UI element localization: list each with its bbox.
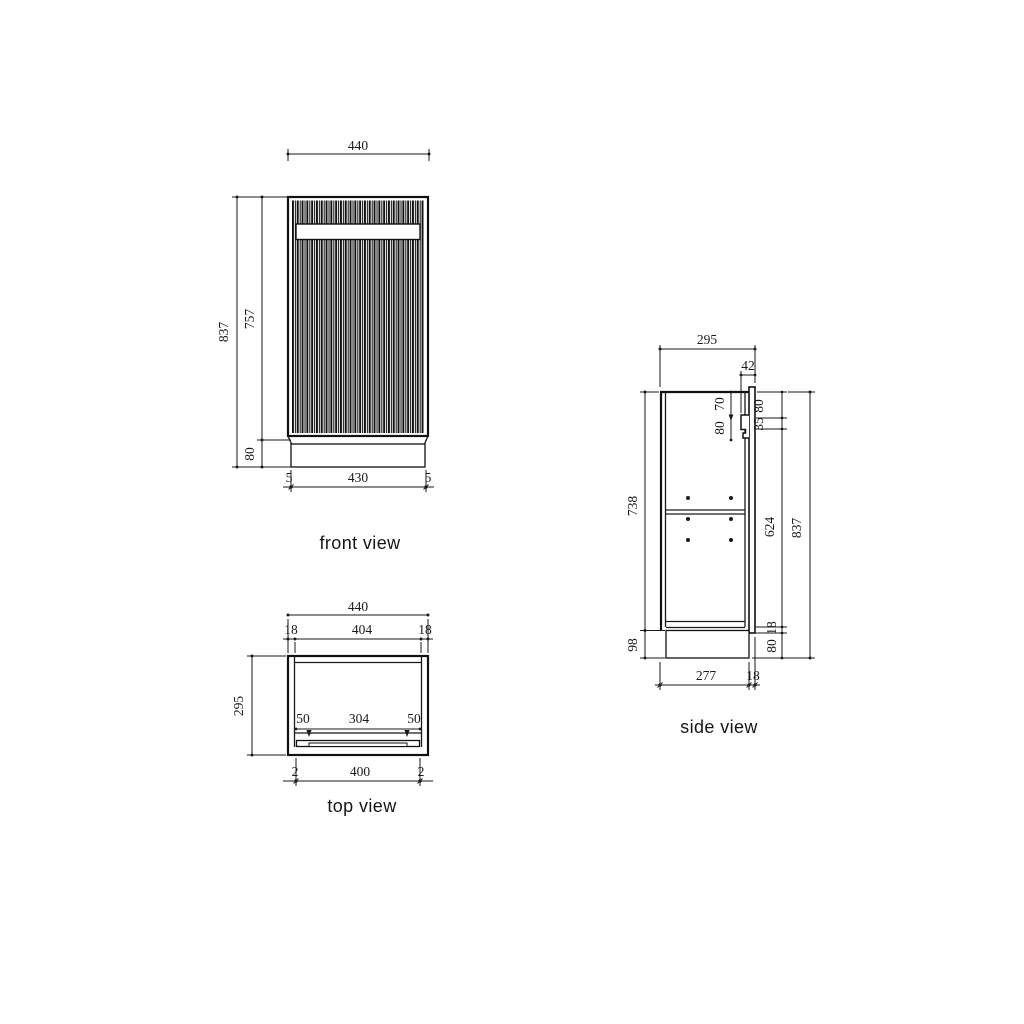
front-dim-height-overall: 837 (216, 322, 231, 343)
side-plinth (666, 631, 749, 659)
front-dim-bottom: 5 430 5 (283, 470, 434, 492)
side-dim-bottom-panel: 18 (764, 621, 779, 635)
front-dim-gap-left: 5 (286, 470, 293, 485)
side-cabinet (660, 387, 755, 658)
top-dim-overall-width: 440 (287, 599, 430, 617)
top-dim-handle-width: 304 (349, 711, 370, 726)
top-dim-wall-left: 18 (284, 622, 298, 637)
front-dim-left-chain: 837 757 80 (216, 196, 291, 469)
top-dim-door-width: 400 (350, 764, 371, 779)
front-dim-plinth-width: 430 (348, 470, 369, 485)
side-handle-profile (741, 415, 749, 438)
top-dim-width-overall: 440 (348, 599, 369, 614)
side-dim-left-chain: 738 98 (625, 391, 665, 660)
front-view: 440 837 757 80 (216, 138, 434, 553)
technical-drawing-page: 440 837 757 80 (0, 0, 1024, 1024)
side-dim-depth-text: 295 (697, 332, 718, 347)
side-dim-handle-grip: 35 (751, 417, 766, 431)
top-cabinet (288, 656, 428, 755)
top-dim-handle-inset-right: 50 (407, 711, 421, 726)
front-dim-width-top: 440 (348, 138, 369, 153)
front-dim-overall-width: 440 (287, 138, 431, 161)
side-dim-base-depth: 277 (696, 668, 717, 683)
top-dim-handle-inset-left: 50 (296, 711, 310, 726)
top-handle-strip (309, 743, 407, 747)
side-dim-plinth-right: 80 (764, 639, 779, 653)
front-handle-groove (296, 224, 420, 240)
drawing-canvas: 440 837 757 80 (0, 0, 1024, 1024)
front-dim-height-door: 757 (242, 309, 257, 330)
front-view-label: front view (319, 533, 401, 553)
front-dim-gap-right: 5 (425, 470, 432, 485)
top-view-label: top view (327, 796, 397, 816)
side-dim-front-assembly-text: 42 (741, 358, 755, 373)
side-dim-door-thickness: 18 (746, 668, 760, 683)
side-dim-top-to-handle: 80 (751, 399, 766, 413)
side-dim-interior-height: 624 (762, 517, 777, 538)
top-dim-interior-width: 404 (352, 622, 373, 637)
side-dim-handle-offset-top: 70 (712, 397, 727, 411)
top-view: 440 18 404 18 (231, 599, 433, 816)
side-dim-overall-height: 837 (788, 391, 815, 660)
top-dim-wall-right: 18 (418, 622, 432, 637)
front-dim-height-plinth: 80 (242, 447, 257, 461)
side-view: 295 42 (625, 332, 815, 737)
side-dim-handle-zone: 80 (712, 421, 727, 435)
top-dim-depth: 295 (231, 655, 286, 757)
side-dim-overall-height-text: 837 (789, 518, 804, 539)
top-dim-door-gap-right: 2 (418, 764, 425, 779)
top-dim-door-gap-left: 2 (292, 764, 299, 779)
front-plinth (291, 444, 425, 467)
side-shelf-pin-holes (686, 496, 733, 542)
side-view-label: side view (680, 717, 758, 737)
side-dim-body-height: 738 (625, 496, 640, 517)
side-dim-handle-chain: 70 80 (712, 391, 733, 442)
top-dim-depth-text: 295 (231, 696, 246, 717)
top-dim-wall-row: 18 404 18 (283, 619, 433, 653)
front-cabinet (288, 197, 428, 467)
side-dim-base-height: 98 (625, 638, 640, 652)
top-dim-bottom: 2 400 2 (283, 758, 433, 786)
side-dim-right-chain: 80 35 624 18 80 (751, 391, 815, 660)
